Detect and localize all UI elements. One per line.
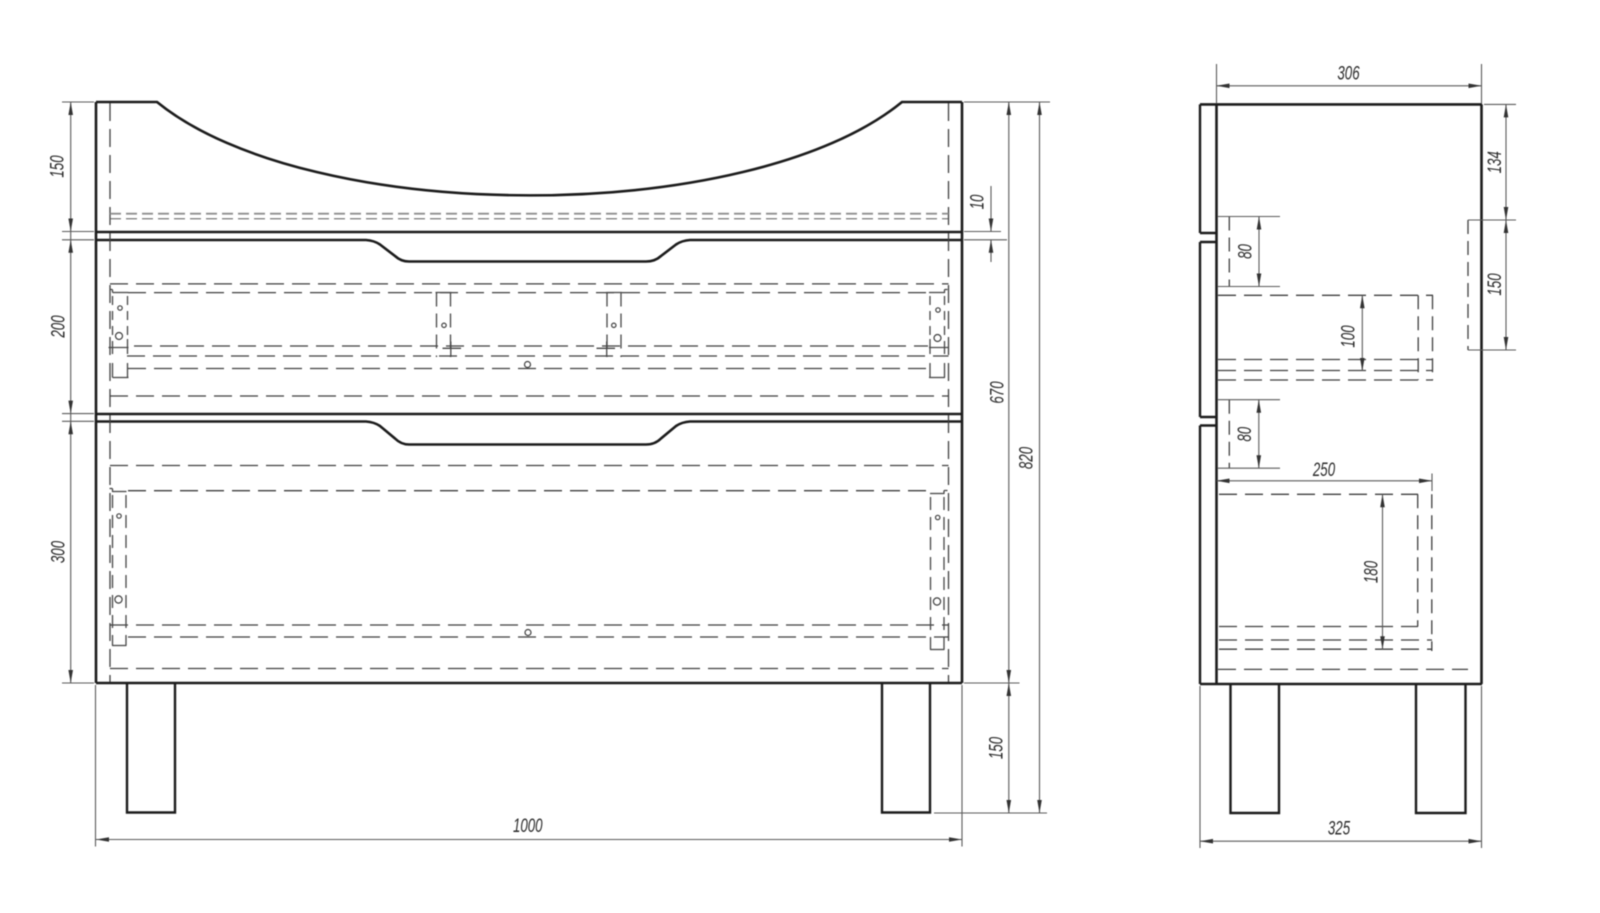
svg-text:300: 300: [48, 541, 69, 563]
svg-text:150: 150: [47, 155, 68, 177]
svg-text:250: 250: [1312, 460, 1335, 481]
svg-text:325: 325: [1328, 818, 1351, 839]
svg-text:10: 10: [967, 195, 988, 210]
svg-text:134: 134: [1485, 151, 1506, 173]
svg-text:80: 80: [1235, 244, 1256, 259]
svg-text:150: 150: [1485, 273, 1506, 295]
svg-text:670: 670: [987, 381, 1008, 403]
svg-text:820: 820: [1016, 447, 1037, 469]
svg-text:80: 80: [1235, 427, 1256, 442]
svg-text:100: 100: [1338, 325, 1359, 347]
svg-text:200: 200: [48, 315, 69, 338]
svg-text:1000: 1000: [513, 816, 543, 837]
svg-text:150: 150: [986, 737, 1007, 759]
svg-text:306: 306: [1337, 63, 1360, 84]
svg-text:180: 180: [1361, 561, 1382, 583]
